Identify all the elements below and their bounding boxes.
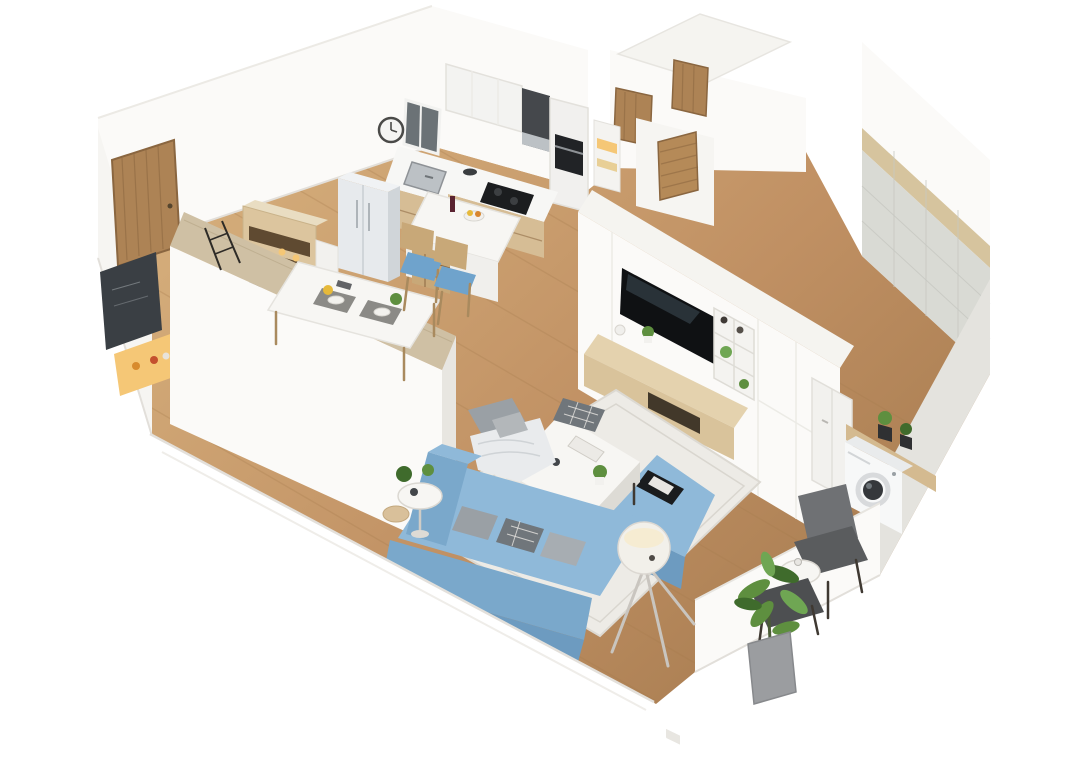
wine-bottle <box>450 196 455 212</box>
range-hood <box>522 88 550 152</box>
isometric-scene <box>0 0 1080 772</box>
wall-clock <box>379 118 403 142</box>
floorplan-render <box>0 0 1080 772</box>
side-table-plant <box>396 466 412 482</box>
niche-cabinet <box>594 120 620 192</box>
wood-shutter-window <box>658 132 698 200</box>
shelf-plant <box>739 379 749 389</box>
vase <box>737 327 744 334</box>
table-plant <box>390 293 402 305</box>
vase <box>721 317 728 324</box>
side-table-plant <box>422 464 434 476</box>
fruit-bowl <box>464 211 484 221</box>
decor-sphere <box>615 325 625 335</box>
refrigerator <box>338 172 400 282</box>
kitchen-window <box>404 100 440 154</box>
door-handle <box>168 204 173 209</box>
pot <box>463 169 477 176</box>
entry-door <box>112 140 180 266</box>
bedroom-door-2 <box>672 60 708 116</box>
shelf-plant <box>720 346 732 358</box>
fruit-bowl <box>323 285 333 295</box>
table-plant <box>593 465 607 479</box>
